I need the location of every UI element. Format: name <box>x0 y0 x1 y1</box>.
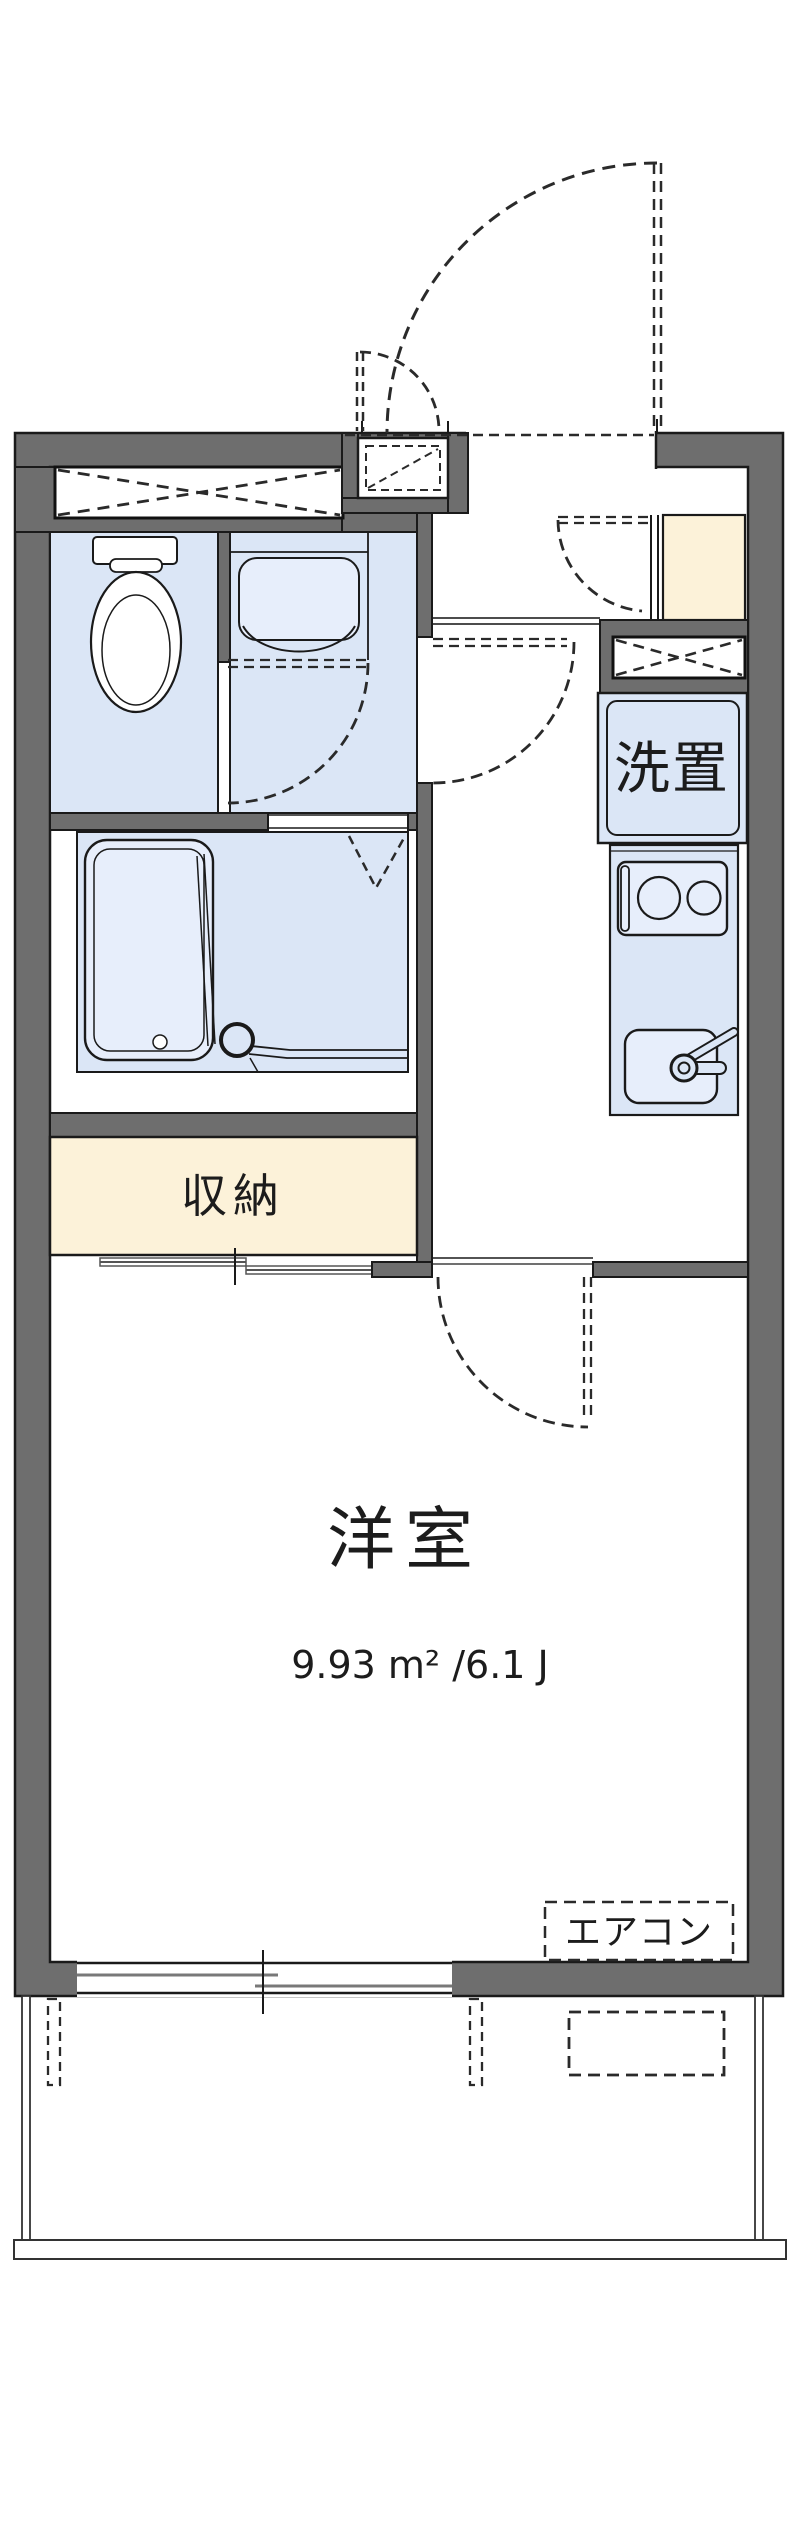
hall-step-line <box>433 618 600 624</box>
entrance-door-arc <box>387 163 661 433</box>
western-room-entry <box>372 1258 748 1427</box>
stove-icon <box>618 862 727 935</box>
washroom <box>228 532 417 813</box>
western-room-door-arc <box>438 1277 591 1427</box>
sink-icon <box>625 1030 734 1103</box>
genkan-shoe-box <box>358 438 448 498</box>
western-room: 洋室 9.93 m² /6.1 J エアコン <box>291 1501 733 1960</box>
corridor-left-wall <box>417 783 432 1277</box>
floorplan-canvas: 収納 洗置 <box>0 0 800 2533</box>
upper-cabinet-crossbox-left <box>55 467 343 518</box>
upper-cabinet-crossbox-right <box>600 620 748 693</box>
bathtub-icon <box>85 840 215 1060</box>
washer-label: 洗置 <box>614 737 730 802</box>
hall-washroom-door-arc <box>433 639 574 783</box>
western-room-label: 洋室 <box>327 1501 483 1580</box>
bathroom <box>50 813 420 1072</box>
washroom-right-wall <box>417 513 432 637</box>
aircon-label: エアコン <box>565 1912 713 1953</box>
balcony-pipe-left <box>48 1999 60 2085</box>
toilet-icon <box>91 537 181 712</box>
kitchen-door-arc <box>558 517 650 611</box>
washer-space: 洗置 <box>598 693 747 843</box>
outdoor-unit-box <box>569 2012 724 2075</box>
toilet-room <box>50 532 218 813</box>
floorplan-svg: 収納 洗置 <box>0 0 800 2533</box>
kitchen-area: 洗置 <box>598 515 748 1115</box>
balcony <box>14 1996 786 2259</box>
shower-tray-icon <box>239 558 359 652</box>
closet-label: 収納 <box>181 1169 285 1223</box>
kitchen-counter <box>610 845 738 1115</box>
balcony-pipe-mid <box>470 1999 482 2085</box>
toilet-washroom-divider-wall <box>218 532 230 662</box>
genkan-door-arc <box>357 352 439 431</box>
closet-room: 収納 <box>50 1137 417 1255</box>
bathroom-bottom-wall <box>50 1113 417 1137</box>
western-room-area: 9.93 m² /6.1 J <box>291 1643 549 1687</box>
refrigerator-space <box>651 515 745 620</box>
aircon-box: エアコン <box>545 1902 733 1960</box>
